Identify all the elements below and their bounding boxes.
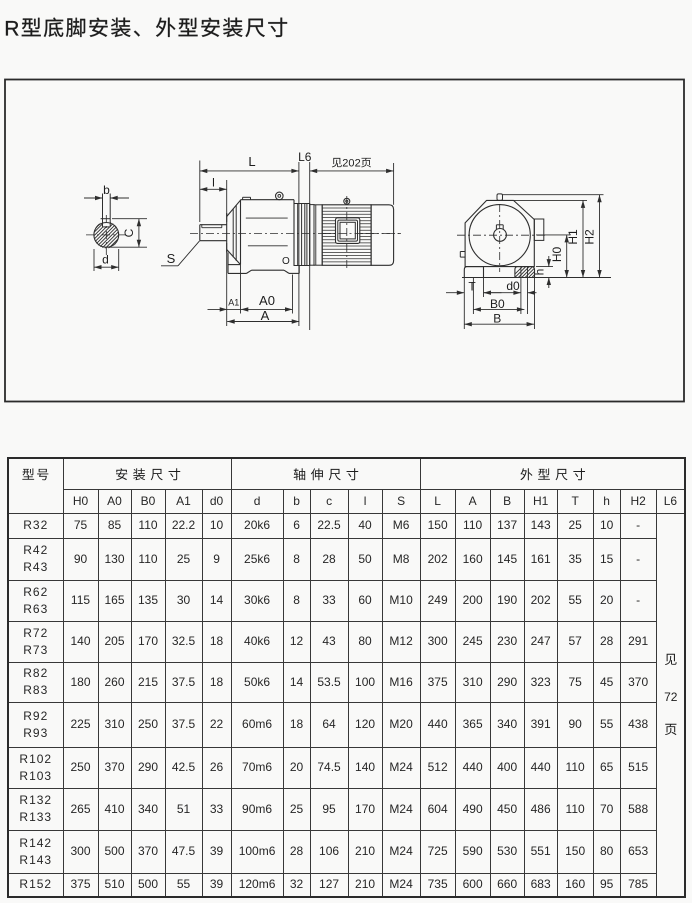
svg-text:d: d: [102, 253, 109, 267]
svg-text:O: O: [282, 256, 290, 267]
svg-text:A1: A1: [228, 298, 239, 308]
svg-text:B: B: [493, 312, 501, 326]
svg-text:H2: H2: [583, 229, 597, 245]
svg-text:2: 2: [355, 158, 361, 170]
svg-text:b: b: [103, 183, 110, 197]
svg-text:C: C: [122, 228, 136, 237]
svg-text:0: 0: [348, 158, 354, 170]
svg-text:A: A: [261, 308, 270, 323]
svg-text:B0: B0: [490, 297, 505, 311]
svg-text:2: 2: [671, 690, 678, 704]
svg-text:H1: H1: [566, 229, 580, 245]
svg-text:A0: A0: [259, 293, 275, 308]
svg-text:h: h: [533, 269, 547, 276]
svg-text:T: T: [468, 280, 476, 294]
svg-text:R: R: [4, 17, 19, 40]
svg-text:d0: d0: [506, 279, 520, 293]
svg-text:l: l: [212, 176, 215, 190]
svg-text:H0: H0: [550, 247, 564, 263]
svg-text:S: S: [167, 251, 176, 266]
svg-text:L6: L6: [298, 150, 312, 164]
svg-text:L: L: [248, 154, 255, 169]
